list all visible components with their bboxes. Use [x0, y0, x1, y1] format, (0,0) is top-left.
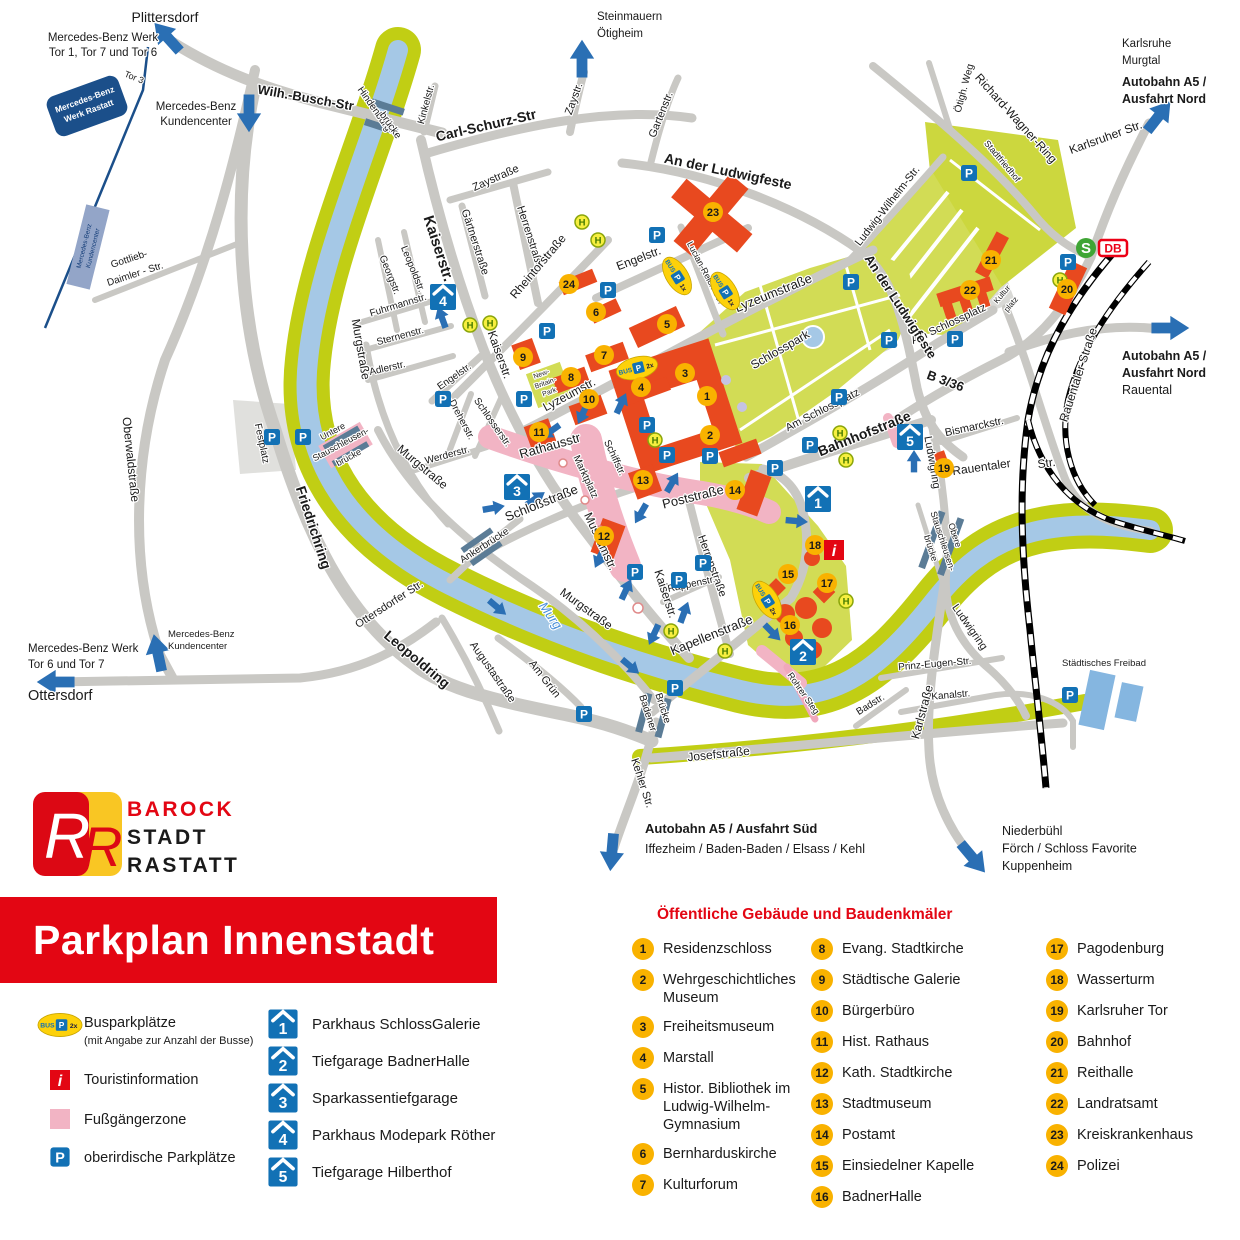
poi-number-badge: 20 [1046, 1031, 1068, 1053]
destination-label: Mercedes-Benz [168, 629, 235, 640]
poi-list-item: 2Wehrgeschichtliches Museum [632, 969, 812, 1007]
bus-stop-icon: H [591, 233, 605, 247]
svg-text:i: i [832, 543, 837, 560]
svg-text:24: 24 [563, 279, 576, 291]
poi-list-item: 17Pagodenburg [1046, 938, 1231, 960]
poi-label: BadnerHalle [842, 1186, 922, 1208]
freibad-buildings [1078, 670, 1143, 730]
parking-icon: P [767, 460, 783, 476]
poi-marker: 8 [561, 367, 581, 387]
poi-number-badge: 5 [632, 1078, 654, 1100]
parking-icon: P [667, 680, 683, 696]
poi-list-item: 9Städtische Galerie [811, 969, 1041, 991]
bus-stop-icon: H [575, 215, 589, 229]
svg-text:H: H [579, 218, 586, 229]
poi-list-title: Öffentliche Gebäude und Baudenkmäler [657, 906, 952, 924]
poi-label: Bahnhof [1077, 1031, 1131, 1053]
parking-icon: P [295, 429, 311, 445]
svg-text:1: 1 [814, 495, 822, 511]
street-label: Rauentaler Straße [1056, 326, 1100, 424]
parking-icon: P [702, 448, 718, 464]
parking-garage-icon: 1 [268, 1009, 298, 1039]
poi-marker: 13 [633, 470, 653, 490]
poi-label: Residenzschloss [663, 938, 772, 960]
svg-text:P: P [1064, 256, 1072, 270]
svg-text:5: 5 [906, 433, 914, 449]
svg-text:4: 4 [439, 293, 447, 309]
destination-label: Ottersdorf [28, 688, 93, 704]
poi-label: Karlsruher Tor [1077, 1000, 1168, 1022]
parking-icon: P [671, 572, 687, 588]
bus-stop-icon: H [664, 624, 678, 638]
poi-label: Histor. Bibliothek im Ludwig-Wilhelm-Gym… [663, 1078, 812, 1134]
poi-number-badge: 17 [1046, 938, 1068, 960]
parking-icon: P [50, 1147, 70, 1167]
poi-label: Marstall [663, 1047, 714, 1069]
poi-marker: 11 [529, 422, 549, 442]
poi-list-item: 13Stadtmuseum [811, 1093, 1041, 1115]
poi-list-item: 12Kath. Stadtkirche [811, 1062, 1041, 1084]
parking-icon: P [831, 389, 847, 405]
parking-icon: P [659, 447, 675, 463]
svg-text:3: 3 [513, 483, 521, 499]
svg-text:P: P [520, 393, 528, 407]
destination-label: Förch / Schloss Favorite [1002, 842, 1137, 856]
bus-parking-oval: BUSP2x [38, 1013, 82, 1036]
legend-bus-sublabel: (mit Angabe zur Anzahl der Busse) [84, 1035, 253, 1047]
svg-text:P: P [643, 419, 651, 433]
destination-label: Autobahn A5 / Ausfahrt Süd [645, 821, 817, 836]
svg-text:17: 17 [821, 578, 833, 590]
poi-marker: 10 [579, 389, 599, 409]
poi-list-item: 4Marstall [632, 1047, 812, 1069]
svg-text:P: P [771, 462, 779, 476]
direction-arrow [907, 450, 921, 472]
poi-marker: 19 [934, 458, 954, 478]
svg-text:11: 11 [533, 427, 545, 439]
svg-text:P: P [671, 682, 679, 696]
poi-marker: 24 [559, 274, 579, 294]
barock-stadt-rastatt-logo: R R BAROCK STADT RASTATT [30, 786, 260, 882]
garage-list-item: 1Parkhaus SchlossGalerie [268, 1009, 495, 1039]
poi-list-item: 5Histor. Bibliothek im Ludwig-Wilhelm-Gy… [632, 1078, 812, 1134]
street-label: Ottersdorfer Str. [353, 578, 425, 631]
parking-garage-icon: 4 [268, 1120, 297, 1149]
poi-label: Hist. Rathaus [842, 1031, 929, 1053]
svg-text:P: P [604, 284, 612, 298]
parking-icon: P [435, 391, 451, 407]
garage-list-item: 3Sparkassentiefgarage [268, 1083, 495, 1113]
legend-info-label: Touristinformation [84, 1069, 198, 1089]
mercedes-kundencenter-box: Mercedes-BenzKundencenter [66, 204, 109, 289]
destination-label: Niederbühl [1002, 824, 1062, 838]
parking-icon: P [802, 437, 818, 453]
poi-list-item: 20Bahnhof [1046, 1031, 1231, 1053]
poi-number-badge: 6 [632, 1143, 654, 1165]
bus-stop-icon: H [839, 453, 853, 467]
svg-text:H: H [487, 319, 494, 330]
svg-text:14: 14 [729, 485, 742, 497]
destination-label: Ötigheim [597, 28, 643, 40]
svg-text:P: P [1066, 689, 1074, 703]
svg-text:P: P [268, 431, 276, 445]
parking-icon: P [843, 274, 859, 290]
poi-list-item: 21Reithalle [1046, 1062, 1231, 1084]
svg-text:P: P [835, 391, 843, 405]
destination-label: Steinmauern [597, 11, 662, 23]
poi-label: Polizei [1077, 1155, 1120, 1177]
poi-number-badge: 23 [1046, 1124, 1068, 1146]
parking-icon: P [516, 391, 532, 407]
garage-label: Sparkassentiefgarage [312, 1090, 458, 1107]
poi-column-2: 8Evang. Stadtkirche9Städtische Galerie10… [811, 938, 1041, 1217]
parking-garage-icon: 5 [268, 1157, 297, 1186]
poi-list-item: 8Evang. Stadtkirche [811, 938, 1041, 960]
destination-arrow [570, 40, 594, 78]
svg-text:6: 6 [593, 307, 599, 319]
poi-label: Städtische Galerie [842, 969, 960, 991]
sbahn-logo: S [1076, 238, 1096, 258]
svg-text:P: P [806, 439, 814, 453]
logo-line1: BAROCK [127, 798, 234, 821]
svg-text:P: P [299, 431, 307, 445]
destination-label: Murgtal [1122, 55, 1160, 67]
garage-label: Tiefgarage Hilberthof [312, 1164, 452, 1181]
poi-marker: 9 [513, 347, 533, 367]
svg-text:5: 5 [664, 319, 670, 331]
parking-icon: P [1060, 254, 1076, 270]
street-label: Wilh.-Busch-Str [257, 82, 356, 114]
svg-text:H: H [467, 321, 474, 332]
poi-label: Stadtmuseum [842, 1093, 931, 1115]
poi-number-badge: 21 [1046, 1062, 1068, 1084]
poi-label: Pagodenburg [1077, 938, 1164, 960]
parking-icon: P [961, 165, 977, 181]
parking-garage-icon: 2 [268, 1046, 298, 1076]
poi-number-badge: 2 [632, 969, 654, 991]
poi-label: Kreiskrankenhaus [1077, 1124, 1193, 1146]
svg-text:2x: 2x [70, 1023, 78, 1030]
legend-p-label: oberirdische Parkplätze [84, 1147, 236, 1167]
parking-garage-icon: 4 [268, 1120, 298, 1150]
svg-text:H: H [843, 597, 850, 608]
destination-arrow [1151, 316, 1189, 340]
poi-label: Bernharduskirche [663, 1143, 777, 1165]
svg-text:9: 9 [520, 352, 526, 364]
poi-marker: 21 [981, 250, 1001, 270]
svg-text:4: 4 [638, 382, 645, 394]
poi-label: Einsiedelner Kapelle [842, 1155, 974, 1177]
legend-ped-label: Fußgängerzone [84, 1109, 186, 1129]
poi-label: Wasserturm [1077, 969, 1155, 991]
poi-list-item: 16BadnerHalle [811, 1186, 1041, 1208]
svg-text:1: 1 [704, 391, 710, 403]
logo-line2: STADT [127, 826, 208, 849]
svg-text:P: P [706, 450, 714, 464]
garage-label: Tiefgarage BadnerHalle [312, 1053, 470, 1070]
poi-list-item: 18Wasserturm [1046, 969, 1231, 991]
svg-text:H: H [837, 429, 844, 440]
tourist-info-icon: i [824, 540, 844, 560]
poi-number-badge: 11 [811, 1031, 833, 1053]
destination-label: Tor 6 und Tor 7 [28, 659, 105, 671]
garage-list-item: 5Tiefgarage Hilberthof [268, 1157, 495, 1187]
parking-garage-icon: 3 [504, 474, 530, 500]
poi-label: Reithalle [1077, 1062, 1133, 1084]
destination-label: Iffezheim / Baden-Baden / Elsass / Kehl [645, 842, 865, 856]
bus-stop-icon: H [718, 644, 732, 658]
svg-text:20: 20 [1061, 284, 1073, 296]
street-label: Ötigh. Weg [952, 63, 976, 114]
poi-list-item: 10Bürgerbüro [811, 1000, 1041, 1022]
parking-garage-icon: 2 [790, 639, 816, 665]
poi-marker: 23 [703, 202, 723, 222]
poi-label: Bürgerbüro [842, 1000, 915, 1022]
parking-garage-icon: 5 [268, 1157, 298, 1187]
garage-label: Parkhaus SchlossGalerie [312, 1016, 480, 1033]
destination-label: Mercedes-Benz Werk [48, 32, 159, 44]
parking-icon: P [539, 323, 555, 339]
svg-text:H: H [843, 456, 850, 467]
poi-number-badge: 19 [1046, 1000, 1068, 1022]
poi-marker: 5 [657, 314, 677, 334]
svg-text:8: 8 [568, 372, 574, 384]
svg-text:P: P [885, 334, 893, 348]
parking-garage-icon: 3 [268, 1083, 297, 1112]
destination-label: Kundencenter [168, 641, 227, 652]
svg-text:P: P [55, 1150, 65, 1166]
destination-label: Plittersdorf [132, 9, 199, 25]
destination-label: Kundencenter [160, 116, 232, 128]
svg-text:S: S [1081, 240, 1091, 257]
pedestrian-zone-swatch [50, 1109, 70, 1129]
poi-label: Kath. Stadtkirche [842, 1062, 952, 1084]
poi-marker: 2 [700, 425, 720, 445]
svg-text:15: 15 [782, 569, 794, 581]
parking-icon: P [600, 282, 616, 298]
svg-text:P: P [59, 1020, 65, 1030]
poi-marker: 6 [586, 302, 606, 322]
poi-number-badge: 7 [632, 1174, 654, 1196]
parking-garage-icon: 2 [268, 1046, 297, 1075]
bus-stop-icon: H [648, 433, 662, 447]
destination-label: Ausfahrt Nord [1122, 366, 1206, 380]
svg-text:3: 3 [682, 368, 688, 380]
poi-number-badge: 3 [632, 1016, 654, 1038]
svg-text:H: H [668, 627, 675, 638]
page-title: Parkplan Innenstadt [0, 897, 497, 983]
svg-text:P: P [439, 393, 447, 407]
parking-icon: P [695, 555, 711, 571]
poi-number-badge: 1 [632, 938, 654, 960]
destination-label: Städtisches Freibad [1062, 658, 1146, 669]
svg-text:P: P [675, 574, 683, 588]
poi-label: Postamt [842, 1124, 895, 1146]
svg-text:5: 5 [279, 1169, 288, 1186]
poi-marker: 7 [594, 345, 614, 365]
street-label: Sternenstr. [376, 325, 426, 348]
parking-icon: P [264, 429, 280, 445]
legend-bus-label: Busparkplätze [84, 1015, 176, 1031]
destination-label: Mercedes-Benz Werk [28, 643, 139, 655]
svg-text:1: 1 [279, 1021, 288, 1038]
bus-parking-oval-icon: BUSP2x [37, 1012, 83, 1038]
poi-number-badge: 24 [1046, 1155, 1068, 1177]
poi-label: Freiheitsmuseum [663, 1016, 774, 1038]
svg-text:BUS: BUS [40, 1023, 55, 1030]
poi-list-item: 11Hist. Rathaus [811, 1031, 1041, 1053]
svg-text:2: 2 [279, 1058, 288, 1075]
svg-text:12: 12 [598, 531, 610, 543]
svg-text:4: 4 [279, 1132, 288, 1149]
poi-marker: 14 [725, 480, 745, 500]
tourist-info-icon: i [49, 1069, 71, 1091]
poi-list-item: 7Kulturforum [632, 1174, 812, 1196]
svg-text:P: P [663, 449, 671, 463]
svg-text:10: 10 [583, 394, 595, 406]
direction-arrow [629, 500, 653, 527]
street-label: Bismarckstr. [944, 415, 1005, 439]
parking-garage-icon: 4 [430, 284, 456, 310]
destination-label: Mercedes-Benz [156, 101, 237, 113]
mercedes-werk-box: Mercedes-BenzWerk Rastatt [44, 73, 130, 138]
poi-list-item: 15Einsiedelner Kapelle [811, 1155, 1041, 1177]
svg-text:7: 7 [601, 350, 607, 362]
poi-number-badge: 16 [811, 1186, 833, 1208]
parkplan-poster: Mercedes-BenzWerk Rastatt Mercedes-BenzK… [0, 0, 1240, 1240]
parking-garage-icon: 1 [805, 486, 831, 512]
poi-number-badge: 10 [811, 1000, 833, 1022]
street-label: Am Grün [526, 658, 563, 700]
svg-text:P: P [965, 167, 973, 181]
city-map: Mercedes-BenzWerk Rastatt Mercedes-BenzK… [0, 0, 1240, 892]
svg-text:P: P [580, 708, 588, 722]
poi-marker: 1 [697, 386, 717, 406]
parking-garage-icon: 3 [268, 1083, 298, 1113]
svg-text:23: 23 [707, 207, 719, 219]
poi-marker: 17 [817, 573, 837, 593]
destination-label: Autobahn A5 / [1122, 75, 1207, 89]
svg-text:P: P [951, 333, 959, 347]
logo-line3: RASTATT [127, 854, 239, 877]
parking-icon: P [881, 332, 897, 348]
svg-text:P: P [699, 557, 707, 571]
parking-icon: P [649, 227, 665, 243]
parking-garage-icon: 1 [268, 1009, 297, 1038]
garage-list-item: 2Tiefgarage BadnerHalle [268, 1046, 495, 1076]
destination-label: Tor 1, Tor 7 und Tor 6 [49, 47, 157, 59]
poi-number-badge: 12 [811, 1062, 833, 1084]
logo-monogram-red: R [82, 815, 122, 878]
svg-text:H: H [595, 236, 602, 247]
poi-marker: 12 [594, 526, 614, 546]
destination-label: Karlsruhe [1122, 38, 1171, 50]
db-logo: DB [1099, 240, 1127, 256]
street-label: Leopoldstr. [398, 244, 427, 293]
svg-text:16: 16 [784, 620, 796, 632]
poi-label: Wehrgeschichtliches Museum [663, 969, 812, 1007]
svg-text:P: P [847, 276, 855, 290]
direction-arrow [482, 499, 507, 517]
poi-list-item: 1Residenzschloss [632, 938, 812, 960]
garage-list-item: 4Parkhaus Modepark Röther [268, 1120, 495, 1150]
street-label: Zaystr. [563, 81, 586, 116]
poi-marker: 3 [675, 363, 695, 383]
svg-text:DB: DB [1104, 242, 1122, 256]
parking-icon: P [627, 564, 643, 580]
poi-list-item: 14Postamt [811, 1124, 1041, 1146]
poi-marker: 18 [805, 535, 825, 555]
poi-marker: 22 [960, 280, 980, 300]
poi-marker: 4 [631, 377, 651, 397]
poi-label: Kulturforum [663, 1174, 738, 1196]
svg-text:P: P [543, 325, 551, 339]
poi-column-1: 1Residenzschloss2Wehrgeschichtliches Mus… [632, 938, 812, 1205]
title-banner: Parkplan Innenstadt [0, 897, 497, 983]
garage-legend-list: 1Parkhaus SchlossGalerie2Tiefgarage Badn… [268, 1009, 495, 1194]
poi-number-badge: 4 [632, 1047, 654, 1069]
poi-list-item: 6Bernharduskirche [632, 1143, 812, 1165]
parking-icon: P [50, 1147, 69, 1166]
parking-icon: P [947, 331, 963, 347]
svg-text:P: P [631, 566, 639, 580]
street-label: Str. [1037, 455, 1057, 471]
svg-text:2: 2 [707, 430, 713, 442]
destination-label: Kuppenheim [1002, 859, 1072, 873]
poi-marker: 15 [778, 564, 798, 584]
poi-number-badge: 9 [811, 969, 833, 991]
destination-label: Autobahn A5 / [1122, 349, 1207, 363]
svg-text:H: H [652, 436, 659, 447]
bus-stop-icon: H [483, 316, 497, 330]
poi-list-item: 22Landratsamt [1046, 1093, 1231, 1115]
poi-label: Landratsamt [1077, 1093, 1158, 1115]
svg-text:3: 3 [279, 1095, 288, 1112]
destination-label: Ausfahrt Nord [1122, 92, 1206, 106]
poi-marker: 16 [780, 615, 800, 635]
poi-column-3: 17Pagodenburg18Wasserturm19Karlsruher To… [1046, 938, 1231, 1186]
bus-stop-icon: H [833, 426, 847, 440]
svg-text:2: 2 [799, 648, 807, 664]
poi-marker: 20 [1057, 279, 1077, 299]
poi-number-badge: 14 [811, 1124, 833, 1146]
poi-number-badge: 22 [1046, 1093, 1068, 1115]
svg-text:H: H [722, 647, 729, 658]
poi-number-badge: 13 [811, 1093, 833, 1115]
destination-label: Rauental [1122, 383, 1172, 397]
svg-text:18: 18 [809, 540, 821, 552]
svg-text:19: 19 [938, 463, 950, 475]
poi-list-item: 24Polizei [1046, 1155, 1231, 1177]
svg-text:P: P [653, 229, 661, 243]
poi-number-badge: 18 [1046, 969, 1068, 991]
parking-icon: P [1062, 687, 1078, 703]
poi-list-item: 19Karlsruher Tor [1046, 1000, 1231, 1022]
bus-stop-icon: H [463, 318, 477, 332]
bus-stop-icon: H [839, 594, 853, 608]
svg-text:i: i [58, 1073, 63, 1090]
svg-text:13: 13 [637, 475, 649, 487]
parking-icon: P [576, 706, 592, 722]
poi-list-item: 3Freiheitsmuseum [632, 1016, 812, 1038]
poi-number-badge: 8 [811, 938, 833, 960]
garage-label: Parkhaus Modepark Röther [312, 1127, 495, 1144]
parking-garage-icon: 5 [897, 424, 923, 450]
poi-number-badge: 15 [811, 1155, 833, 1177]
svg-text:21: 21 [985, 255, 997, 267]
poi-label: Evang. Stadtkirche [842, 938, 964, 960]
street-label: Tor 3 [123, 69, 145, 86]
